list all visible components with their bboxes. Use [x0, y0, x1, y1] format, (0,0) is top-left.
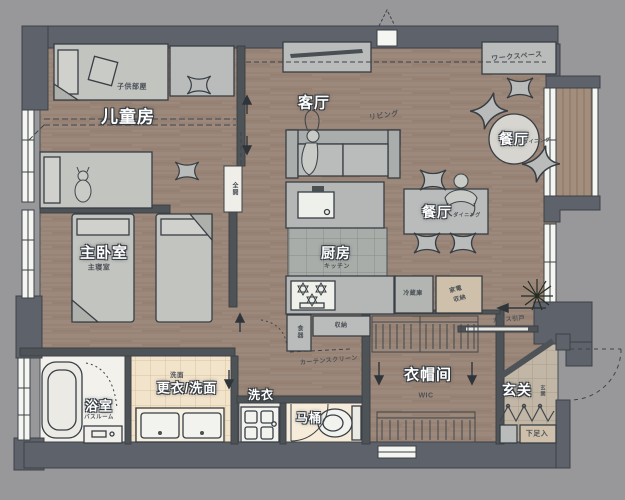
balcony-rail	[592, 88, 598, 196]
double-sink-icon	[136, 408, 224, 442]
kitchen-island-icon	[286, 182, 384, 228]
child-bed-icon	[54, 44, 168, 100]
vent-arrow	[379, 10, 395, 26]
room-sublabel-washroom: 洗面	[170, 373, 184, 380]
shoe-cabinet-label: 下足入	[526, 431, 549, 438]
room-sublabel-kitchen: キッチン	[324, 264, 350, 270]
bath-vanity-icon	[84, 426, 122, 443]
refrigerator-label: 冷蔵庫	[403, 291, 423, 297]
kitchen-counter-icon	[286, 276, 394, 314]
room-label-master: 主卧室	[80, 246, 128, 261]
room-label-kitchen: 厨房	[321, 246, 351, 260]
dish-cabinet-label: 食器	[296, 325, 302, 339]
room-label-toilet: 马桶	[296, 412, 322, 424]
child-bed2-icon	[40, 152, 152, 208]
room-label-living: 客厅	[298, 96, 330, 111]
stool-icon	[175, 162, 198, 180]
storage-label: 収納	[334, 323, 347, 329]
room-label-washroom: 更衣/洗面	[157, 382, 218, 395]
master-bed2-icon	[156, 214, 212, 322]
room-sublabel-bathroom: バスルーム	[84, 415, 114, 421]
glass-door-pane	[466, 328, 528, 331]
appliance-storage-icon	[436, 276, 482, 313]
room-label-dining: 餐厅	[422, 205, 452, 219]
washing-machine-icon	[241, 407, 279, 442]
top-vent	[377, 30, 397, 46]
stool-icon	[507, 78, 533, 98]
room-sublabel-wic: WIC	[418, 393, 433, 400]
sliding-panel-label: 全開	[231, 182, 237, 196]
room-label-wic: 衣帽间	[404, 368, 452, 383]
room-label-bathroom: 浴室	[85, 400, 113, 413]
room-label-entrance: 玄关	[502, 383, 532, 397]
room-sublabel-children: 子供部屋	[117, 84, 147, 91]
room-sublabel-entrance: 玄関	[540, 385, 545, 397]
balcony-deck	[556, 86, 592, 196]
room-sublabel-dining: ダイニング	[453, 214, 481, 219]
room-sublabel-master: 主寝室	[88, 265, 111, 272]
bathtub-icon	[42, 362, 82, 438]
room-label-laundry: 洗衣	[248, 389, 274, 401]
floor-plan: 儿童房 子供部屋 主卧室 主寝室 客厅 リビング 餐厅 ダイニング 餐厅 ダイニ…	[0, 0, 625, 500]
stool-icon	[187, 76, 210, 94]
room-label-children: 儿童房	[101, 109, 155, 126]
tv-board-icon	[283, 42, 371, 72]
